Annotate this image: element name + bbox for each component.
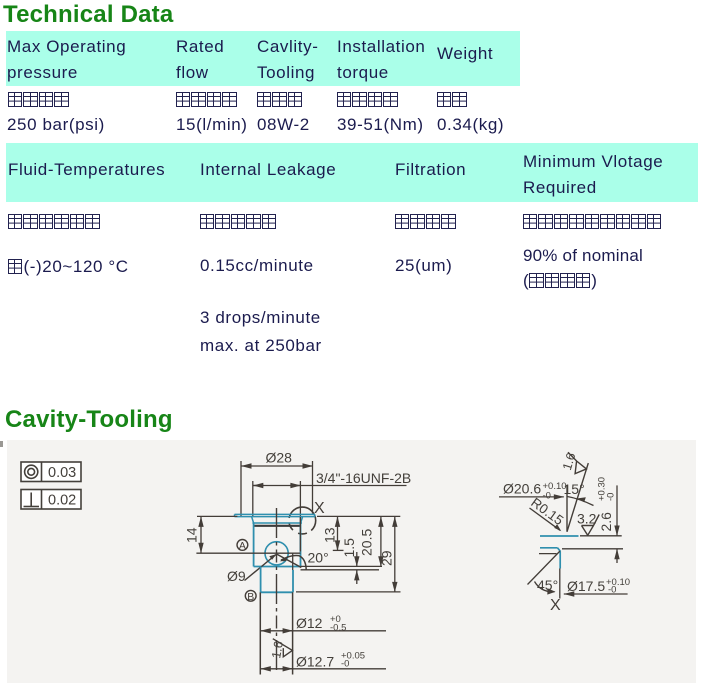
- svg-text:A: A: [239, 540, 246, 552]
- svg-text:-0: -0: [606, 493, 617, 501]
- svg-text:X: X: [314, 500, 325, 517]
- svg-text:Ø12: Ø12: [296, 615, 323, 631]
- svg-text:0.02: 0.02: [48, 493, 76, 509]
- svg-text:Ø12.7: Ø12.7: [296, 654, 334, 670]
- svg-text:2.6: 2.6: [598, 512, 614, 532]
- svg-text:1.6: 1.6: [269, 640, 286, 660]
- svg-text:-0.5: -0.5: [330, 622, 346, 633]
- svg-text:13: 13: [322, 527, 338, 543]
- svg-text:Ø20.6: Ø20.6: [503, 481, 541, 497]
- svg-text:3/4"-16UNF-2B: 3/4"-16UNF-2B: [316, 470, 411, 486]
- svg-text:X: X: [550, 597, 561, 614]
- svg-text:45°: 45°: [537, 577, 558, 593]
- svg-text:Ø9: Ø9: [227, 568, 246, 584]
- svg-text:29: 29: [379, 550, 395, 566]
- svg-text:Ø28: Ø28: [266, 450, 293, 466]
- svg-text:20°: 20°: [308, 550, 329, 566]
- svg-text:B: B: [247, 591, 254, 603]
- svg-text:20.5: 20.5: [359, 529, 375, 556]
- svg-text:-0: -0: [341, 659, 349, 670]
- svg-text:-0: -0: [608, 584, 616, 595]
- svg-text:0.03: 0.03: [48, 465, 76, 481]
- svg-text:14: 14: [184, 527, 200, 543]
- svg-text:Ø17.5: Ø17.5: [567, 578, 605, 594]
- svg-text:1.5: 1.5: [341, 538, 357, 558]
